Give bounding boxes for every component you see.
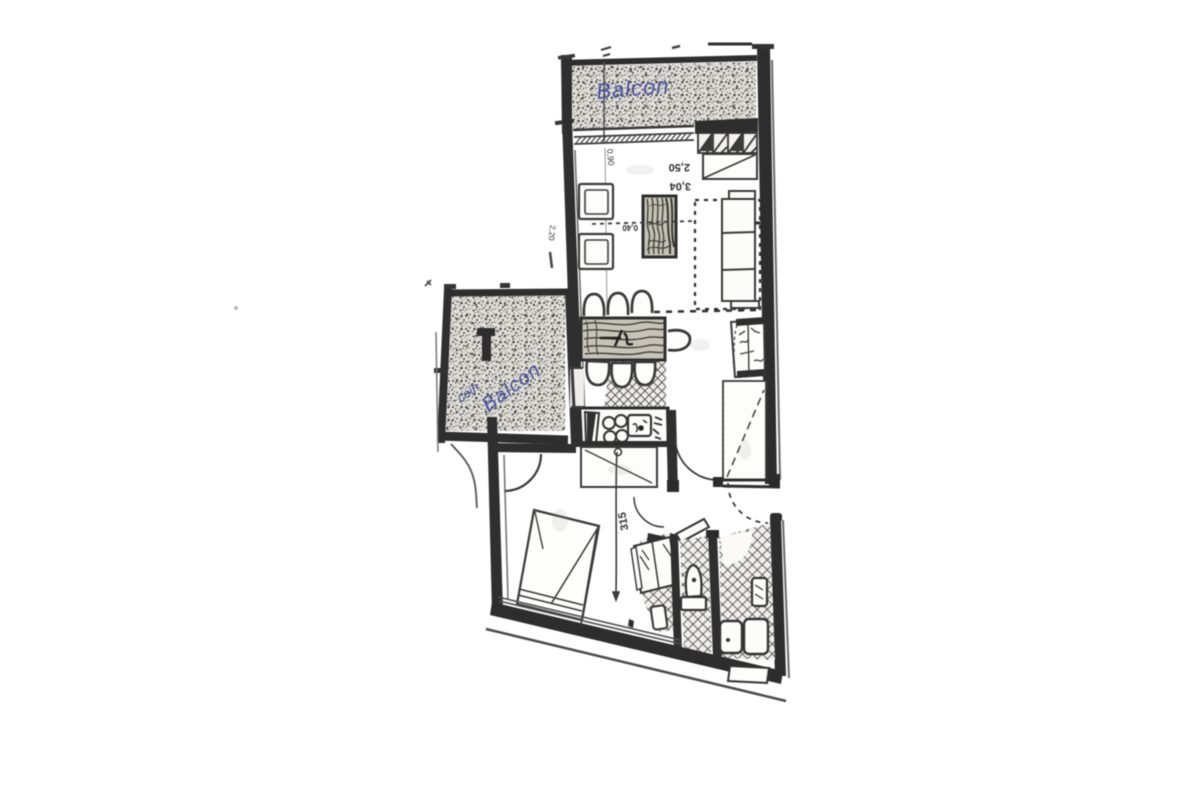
svg-text:0,40: 0,40: [622, 223, 638, 232]
svg-text:3,04: 3,04: [669, 180, 691, 192]
svg-text:0,90: 0,90: [605, 148, 616, 166]
svg-text:2,50: 2,50: [669, 161, 690, 173]
svg-text:2,20: 2,20: [547, 225, 557, 242]
